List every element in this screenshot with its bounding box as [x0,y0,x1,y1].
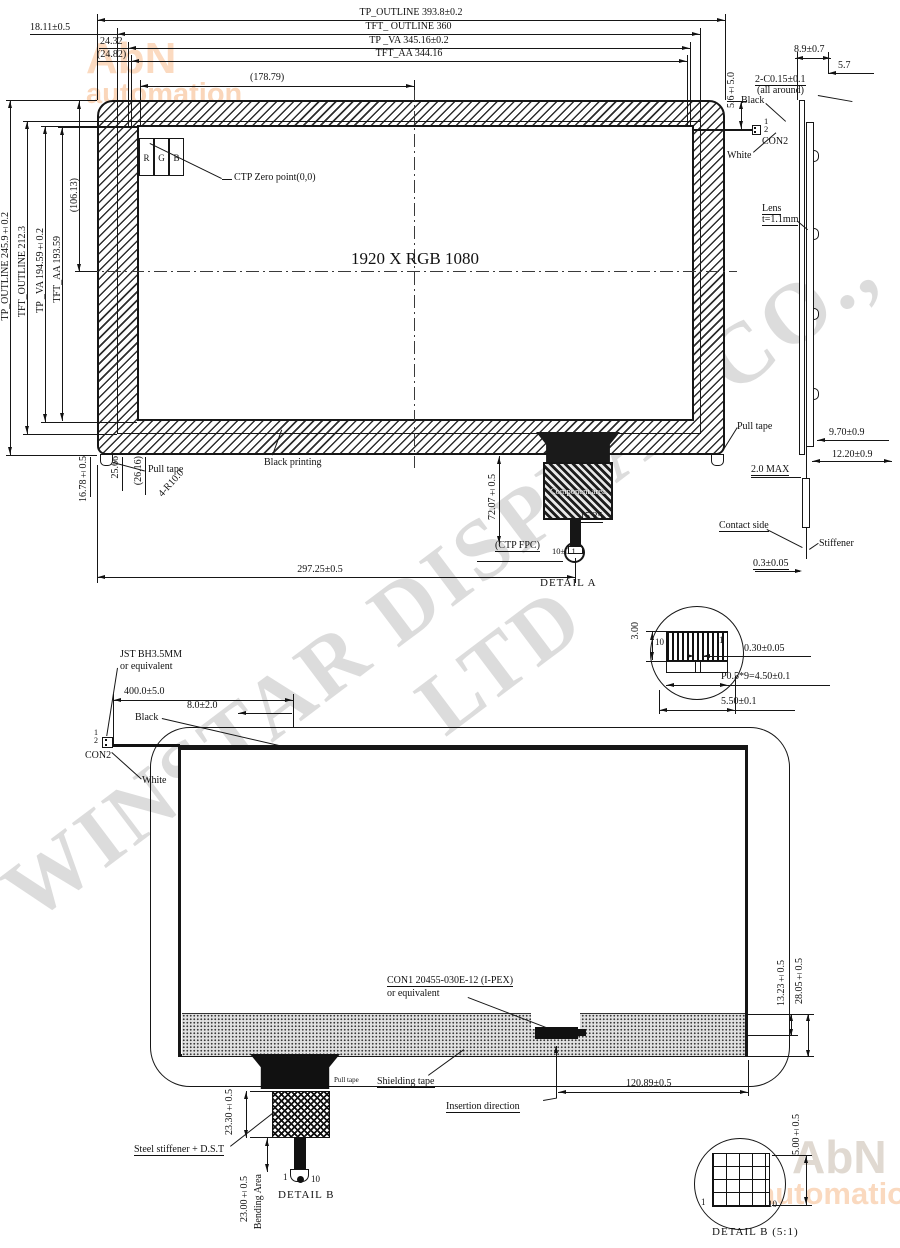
dim-23-30: 23.30±0.5 [224,1089,235,1135]
pull-tape-label-rear: Pull tape [334,1077,359,1085]
shielding-tape-label: Shielding tape [377,1076,435,1088]
black-wire-label-rear: Black [135,712,158,723]
con2-wire [694,129,752,131]
dim-3-00: 3.00 [630,622,641,640]
dim-line [98,61,687,62]
ext-line [700,28,701,121]
ext-line [797,52,798,100]
white-leader-rear [111,752,142,780]
dim-5-6: 5.6±5.0 [726,72,737,108]
rear-fpc-neck [250,1054,340,1089]
black-printing-label: Black printing [264,457,322,468]
arrow [559,1090,566,1094]
rear-pin-10: 10 [311,1175,320,1185]
ext-line [90,457,91,497]
dim-line [666,685,830,686]
arrow [497,457,501,464]
side-clip [813,150,819,162]
insertion-leader [543,1098,557,1102]
arrow [43,127,47,134]
dim-line [499,456,500,544]
arrow [60,128,64,135]
ext-line [117,28,118,121]
ext-line [58,127,137,128]
dim-tft-outline-height: TFT_OUTLINE 212.3 [17,226,28,317]
drawing-sheet: WINSTAR DISPLAY CO., LTD AbN automation … [0,0,900,1248]
dim-pitch: P0.5*9=4.50±0.1 [721,671,790,682]
ext-line [97,14,98,100]
con1-connector-tail [577,1029,586,1036]
arrow [650,652,654,659]
fpc-contact-base [666,661,728,673]
bending-area-label: Bending Area [253,1174,264,1229]
detail-a-pin-10: 10 [655,638,664,648]
ext-line [772,1205,812,1206]
tft-module-rear [178,745,748,1057]
dim-9-70: 9.70±0.9 [829,427,865,438]
arrow [679,59,686,63]
arrow [829,71,836,75]
dim-2-0-max: 2.0 MAX [751,464,789,476]
arrow [739,102,743,109]
dim-tft-aa-height: TFT_AA 193.59 [52,236,63,303]
side-clip [813,308,819,320]
ctp-zero-leader-h [222,179,232,180]
dim-fpc-length: 72.07±0.5 [487,474,498,520]
pull-tape-tab-right [711,454,724,466]
ext-line [687,55,688,126]
dim-400: 400.0±5.0 [124,686,165,697]
dim-23-00: 23.00±0.5 [239,1176,250,1222]
leader-line [751,477,801,478]
ctp-zero-label: CTP Zero point(0,0) [234,172,316,183]
dim-line [817,440,889,441]
arrow [806,1014,810,1021]
ext-line [748,1056,814,1057]
insertion-direction-label: Insertion direction [446,1101,520,1113]
dim-line [140,86,414,87]
dim-line [558,1092,748,1093]
dim-tp-va-width: TP _VA 345.16±0.2 [128,35,690,46]
dim-tp-outline-height: TP_OUTLINE 245.9±0.2 [0,212,11,321]
pull-tape-label-right: Pull tape [737,421,772,432]
con2-pin-dot [754,131,756,133]
dim-line [755,571,800,572]
rear-fpc-contact-ball [297,1176,304,1183]
con2-rear-label: CON2 [85,750,111,761]
steel-stiffener-block [272,1091,330,1138]
lens-thickness-label: t=1.1mm [762,214,798,226]
ext-line [659,690,660,714]
dim-5-7: 5.7 [838,60,851,71]
ext-line [293,694,294,727]
ext-line [41,422,137,423]
arrow [25,122,29,129]
leader-line [477,561,563,562]
dim-left-offset: 18.11±0.5 [30,22,70,33]
dim-24-82: (24.82) [97,49,126,60]
contact-side-leader [766,529,802,548]
dim-13-23: 13.23±0.5 [776,960,787,1006]
ext-line [6,100,97,101]
ext-line [646,661,666,662]
arrow [244,1092,248,1099]
arrow [239,711,246,715]
arrow [789,1029,793,1036]
arrow [740,1090,747,1094]
detail-b-contact-grid [712,1153,770,1207]
jst-label-2: or equivalent [120,661,172,672]
contact-side-label: Contact side [719,520,769,532]
arrow [60,413,64,420]
con2-pin-2: 2 [764,125,768,134]
arrow [406,84,413,88]
dim-bottom-width: 297.25±0.5 [240,564,400,575]
ext-line [75,271,97,272]
arrow [650,633,654,640]
dim-tp-outline-width: TP_OUTLINE 393.8±0.2 [97,7,725,18]
dim-178-79: (178.79) [250,72,284,83]
leader-line [703,656,811,657]
arrow [804,1197,808,1204]
dim-0-3: 0.3±0.05 [753,558,789,570]
detail-b-pin-1: 1 [701,1198,706,1208]
ctp-fpc-label: (CTP FPC) [495,540,540,552]
dim-12-20: 12.20±0.9 [832,449,873,460]
arrow [98,575,105,579]
ext-line [250,1091,272,1092]
pull-tape-label-left: Pull tape [148,464,183,475]
ext-line [140,80,141,125]
arrow [8,101,12,108]
dim-5-50: 5.50±0.1 [721,696,757,707]
arrow [720,683,727,687]
arrow [77,102,81,109]
fpc-neck [536,432,620,463]
stiffener-label: Stiffener [819,538,854,549]
rgb-cell-g: G [154,138,169,176]
ext-line [735,676,736,714]
con2-connector-rear [102,737,113,748]
arrow [687,654,694,658]
side-clip [813,228,819,240]
arrow [884,459,891,463]
arrow [98,18,105,22]
ext-line [23,434,117,435]
arrow [43,414,47,421]
con2-rear-pin-2: 2 [94,737,98,746]
stiffener-leader [809,543,819,550]
detail-b-caption: DETAIL B (5:1) [712,1226,799,1238]
arrow [739,121,743,128]
side-stiffener [802,478,810,528]
arrow [118,32,125,36]
dim-8-9: 8.9±0.7 [794,44,825,55]
insertion-arrow [554,1046,558,1053]
centerline-horizontal [85,271,737,272]
arrow [141,84,148,88]
dim-120-89: 120.89±0.5 [626,1078,672,1089]
arrow [813,459,820,463]
ext-line [122,457,123,491]
side-clip [813,388,819,400]
ext-line [128,42,129,126]
detail-a-label: DETAIL A [540,577,597,589]
ext-line [131,55,132,126]
ext-line [113,694,114,744]
resolution-label: 1920 X RGB 1080 [290,250,540,269]
arrow [795,569,802,573]
contact-tick [695,661,696,673]
con1-label: CON1 20455-030E-12 (I-PEX) [387,975,513,987]
arrow [804,1156,808,1163]
dim-tp-va-height: TP _VA 194.59±0.2 [35,228,46,313]
dim-line [812,461,892,462]
side-view-lens [799,100,805,455]
arrow [114,698,121,702]
detail-b-label: DETAIL B [278,1189,335,1201]
arrow [727,708,734,712]
dim-0-30: 0.30±0.05 [744,643,785,654]
ext-line [97,465,98,583]
centerline-vertical [414,88,415,468]
ext-line [646,631,666,632]
arrow [667,683,674,687]
ext-line [414,80,415,90]
detail-a-pin-1: 1 [719,636,724,646]
ext-line [23,121,117,122]
white-wire-label-rear: White [142,775,166,786]
dim-fpc-10: 10±0.1 [552,547,576,556]
con1-label-2: or equivalent [387,988,439,999]
ext-line [748,1014,814,1015]
arrow [717,18,724,22]
arrow [789,1014,793,1021]
arrow [132,59,139,63]
dim-tft-aa-width: TFT_AA 344.16 [131,48,687,59]
ext-line [748,1060,749,1096]
arrow [265,1139,269,1146]
fpc-component-area: Component area [543,462,613,520]
rear-fpc-tail [294,1138,306,1171]
ext-line [250,1137,294,1138]
con1-connector [535,1027,578,1039]
steel-stiffener-label: Steel stiffener + D.S.T [134,1144,224,1156]
con2-pin-dot [754,127,756,129]
dim-106-13: (106.13) [69,178,80,212]
arrow [285,698,292,702]
arrow [692,32,699,36]
active-area [137,125,694,421]
arrow [660,708,667,712]
dim-line [97,577,575,578]
black-leader [765,103,786,122]
white-wire-label: White [727,150,751,161]
chamfer-leader [818,95,853,102]
jst-label: JST BH3.5MM [120,649,182,660]
dim-line [238,713,292,714]
wire-harness [113,744,180,747]
con2-pin-dot [105,739,107,741]
dim-24-32: 24.32 [100,36,123,47]
arrow [8,447,12,454]
dim-5-00: 5.00±0.5 [791,1114,802,1155]
insertion-arrow-line [556,1046,557,1098]
contact-tick [700,661,701,673]
dim-tft-outline-width: TFT_ OUTLINE 360 [117,21,700,32]
dim-16-78: 16.78±0.5 [78,456,89,502]
arrow [25,426,29,433]
rear-pin-1: 1 [283,1173,288,1183]
arrow [77,264,81,271]
pull-tape-tab-left [100,454,113,466]
component-area-label: Component area [550,486,606,496]
ext-line [690,42,691,126]
dim-8-0: 8.0±2.0 [187,700,218,711]
arrow [818,438,825,442]
con2-pin-dot [105,744,107,746]
ext-line [145,457,146,495]
dim-15-25: 15.25 [580,511,603,523]
arrow [806,1050,810,1057]
ext-line [772,1155,812,1156]
dim-28-05: 28.05±0.5 [794,958,805,1004]
arrow [265,1164,269,1171]
